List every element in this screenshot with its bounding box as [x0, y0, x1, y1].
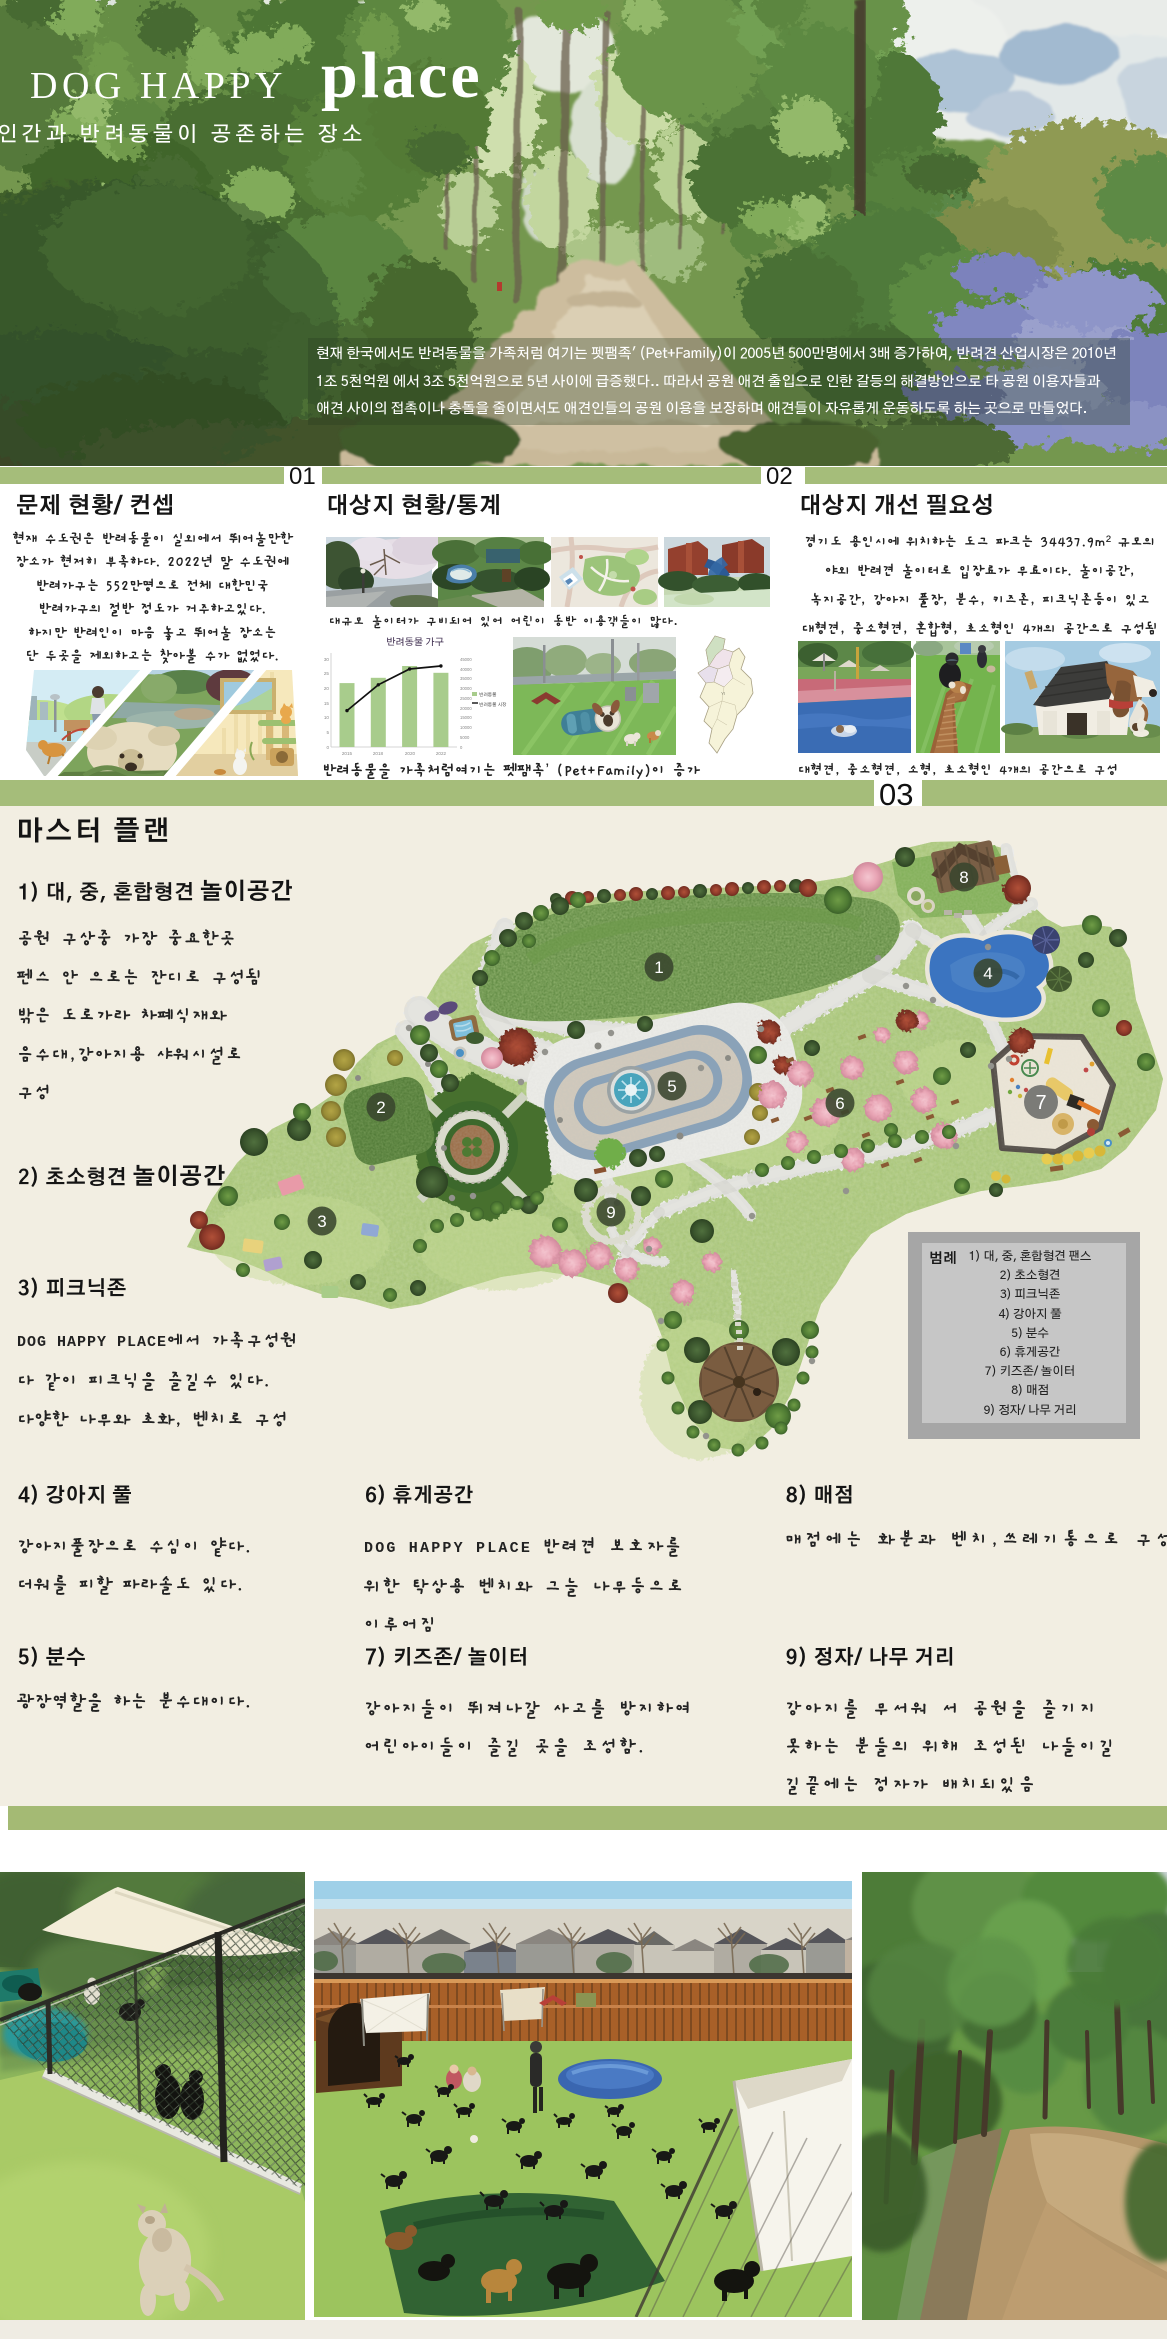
- svg-text:YI: YI: [721, 691, 725, 696]
- svg-text:6: 6: [835, 1094, 844, 1113]
- svg-text:35000: 35000: [460, 676, 472, 681]
- svg-text:20000: 20000: [460, 706, 472, 711]
- svg-text:45000: 45000: [460, 657, 472, 662]
- svg-text:30: 30: [324, 657, 330, 662]
- svg-text:반려동물 가구: 반려동물 가구: [386, 637, 444, 647]
- svg-text:15: 15: [324, 701, 330, 706]
- svg-text:20: 20: [324, 686, 330, 691]
- svg-text:10: 10: [324, 715, 330, 720]
- svg-text:10000: 10000: [460, 725, 472, 730]
- svg-text:반려동물 시장: 반려동물 시장: [479, 702, 507, 707]
- svg-text:2015: 2015: [342, 751, 353, 756]
- svg-text:30000: 30000: [460, 686, 472, 691]
- svg-text:0: 0: [460, 745, 463, 750]
- svg-text:8: 8: [959, 868, 968, 887]
- svg-text:5: 5: [326, 730, 329, 735]
- svg-text:7: 7: [1035, 1092, 1046, 1114]
- svg-text:2: 2: [376, 1098, 385, 1117]
- svg-text:5: 5: [667, 1077, 676, 1096]
- svg-text:2020: 2020: [405, 751, 416, 756]
- svg-text:2022: 2022: [436, 751, 447, 756]
- svg-text:0: 0: [326, 745, 329, 750]
- svg-text:40000: 40000: [460, 667, 472, 672]
- svg-text:3: 3: [317, 1212, 326, 1231]
- svg-text:9: 9: [606, 1203, 615, 1222]
- svg-text:15000: 15000: [460, 715, 472, 720]
- svg-text:2018: 2018: [373, 751, 384, 756]
- svg-text:4: 4: [983, 964, 992, 983]
- svg-text:5000: 5000: [460, 735, 470, 740]
- svg-text:1: 1: [654, 958, 663, 977]
- svg-text:25: 25: [324, 671, 330, 676]
- svg-text:반려동물: 반려동물: [479, 692, 497, 697]
- svg-text:25000: 25000: [460, 696, 472, 701]
